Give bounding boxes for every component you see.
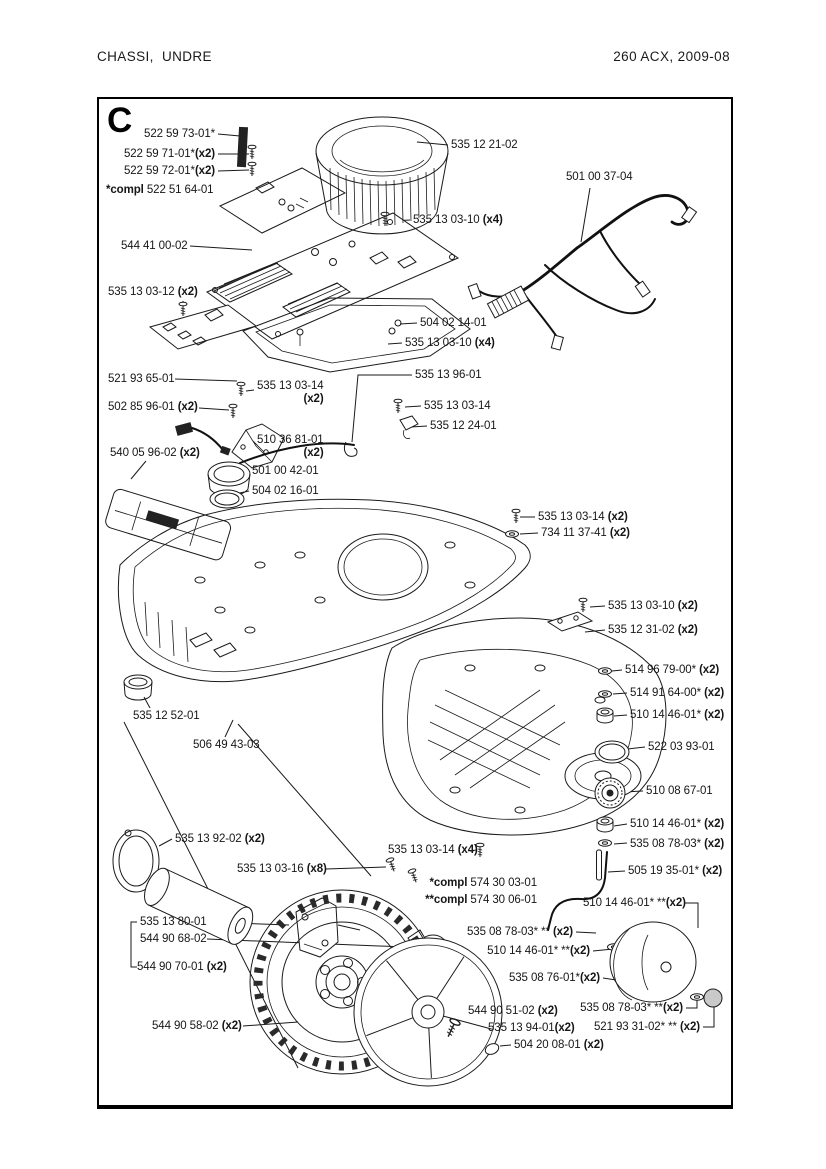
motor-mount-parts [208,399,418,508]
cable-harness [468,195,696,350]
cap [124,675,152,700]
parts-manual-page: CHASSI, UNDRE 260 ACX, 2009-08 C [0,0,826,1169]
filter-drum [316,117,448,234]
wheel-hub-cover [354,938,502,1086]
caster-assembly [548,852,722,1007]
exploded-view-drawing [0,0,826,1169]
